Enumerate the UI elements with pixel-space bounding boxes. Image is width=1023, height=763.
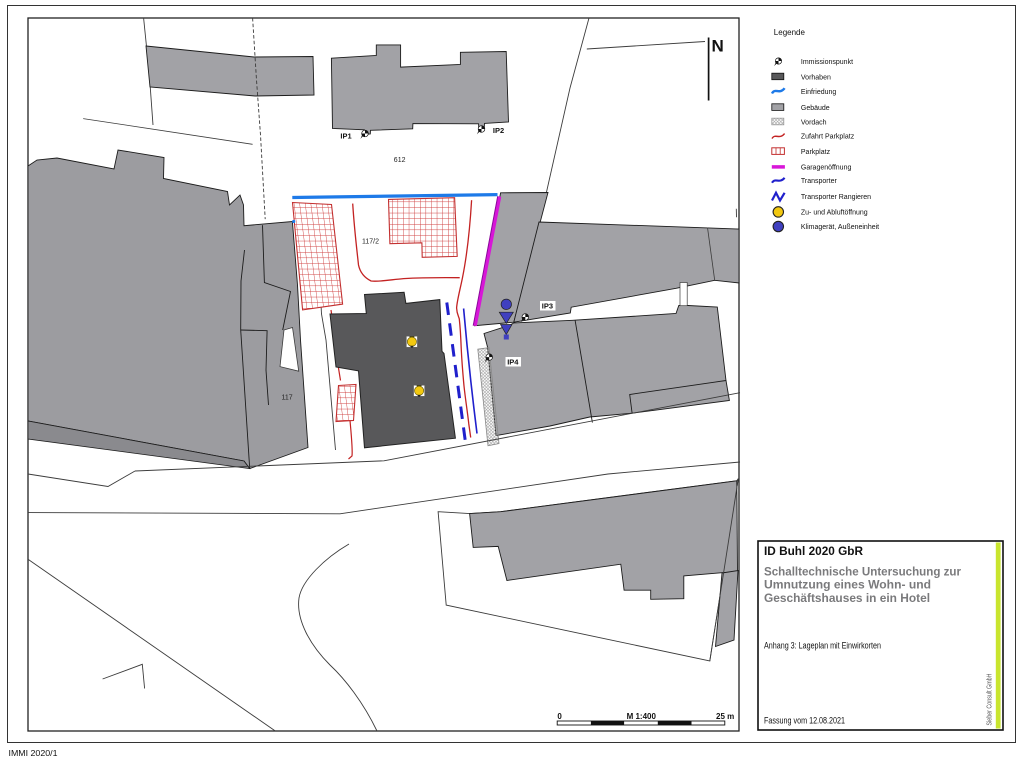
- svg-text:612: 612: [394, 157, 406, 164]
- svg-text:25 m: 25 m: [716, 712, 734, 721]
- svg-text:Gebäude: Gebäude: [801, 105, 830, 112]
- svg-text:117: 117: [282, 395, 293, 402]
- svg-text:Legende: Legende: [774, 28, 806, 37]
- svg-text:Zu- und Abluftöffnung: Zu- und Abluftöffnung: [801, 210, 868, 217]
- svg-text:Klimagerät, Außeneinheit: Klimagerät, Außeneinheit: [801, 224, 879, 231]
- svg-text:Geschäftshauses in ein Hotel: Geschäftshauses in ein Hotel: [764, 591, 930, 605]
- svg-text:Parkplatz: Parkplatz: [801, 149, 831, 156]
- svg-text:IP1: IP1: [340, 131, 351, 140]
- svg-text:Fassung vom 12.08.2021: Fassung vom 12.08.2021: [764, 716, 845, 726]
- svg-text:M 1:400: M 1:400: [627, 712, 657, 721]
- svg-text:Anhang 3: Lageplan mit Einwirk: Anhang 3: Lageplan mit Einwirkorten: [764, 641, 881, 651]
- svg-text:IP2: IP2: [493, 126, 504, 135]
- svg-text:Garagenöffnung: Garagenöffnung: [801, 165, 852, 172]
- svg-text:Umnutzung eines Wohn- und: Umnutzung eines Wohn- und: [764, 578, 931, 592]
- svg-text:0: 0: [557, 712, 562, 721]
- svg-text:IP3: IP3: [542, 302, 553, 311]
- svg-text:Vordach: Vordach: [801, 119, 827, 126]
- svg-text:Transporter: Transporter: [801, 178, 838, 185]
- svg-text:Sieber Consult GmbH: Sieber Consult GmbH: [987, 674, 994, 726]
- svg-text:Schalltechnische Untersuchung: Schalltechnische Untersuchung zur: [764, 565, 961, 579]
- svg-text:117/2: 117/2: [362, 239, 379, 246]
- svg-text:Immissionspunkt: Immissionspunkt: [801, 59, 853, 66]
- svg-text:Transporter Rangieren: Transporter Rangieren: [801, 194, 871, 201]
- svg-text:IMMI 2020/1: IMMI 2020/1: [9, 748, 58, 758]
- svg-text:Einfriedung: Einfriedung: [801, 89, 837, 96]
- svg-text:Vorhaben: Vorhaben: [801, 74, 831, 81]
- svg-text:ID Buhl 2020 GbR: ID Buhl 2020 GbR: [764, 544, 863, 558]
- svg-text:Zufahrt Parkplatz: Zufahrt Parkplatz: [801, 134, 855, 141]
- svg-text:IP4: IP4: [507, 358, 519, 367]
- svg-text:N: N: [712, 37, 724, 56]
